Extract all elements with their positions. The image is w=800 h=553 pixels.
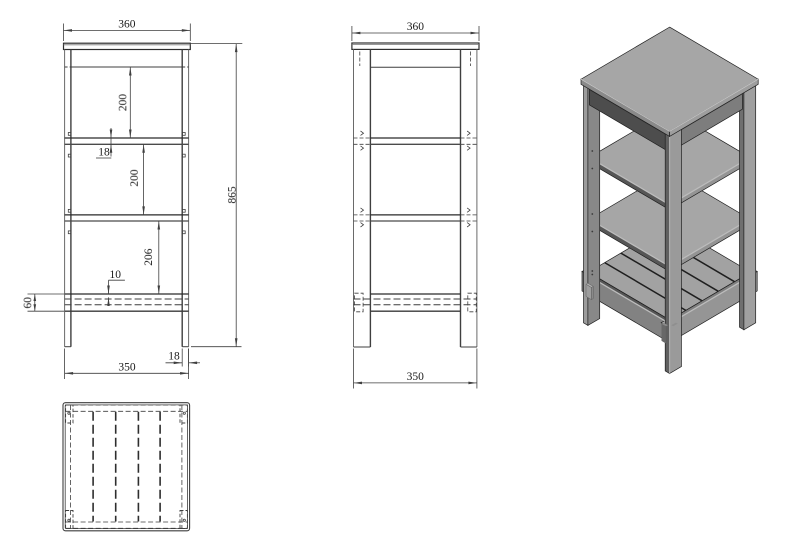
svg-text:350: 350 [118,361,136,373]
svg-text:60: 60 [22,297,34,309]
svg-text:360: 360 [407,21,425,33]
svg-text:200: 200 [117,94,129,112]
svg-text:350: 350 [407,371,425,383]
svg-text:18: 18 [98,147,110,159]
svg-text:10: 10 [109,269,121,281]
svg-text:200: 200 [129,169,141,187]
svg-text:865: 865 [227,186,239,204]
svg-text:18: 18 [168,350,180,362]
svg-text:360: 360 [118,18,136,30]
svg-text:206: 206 [143,248,155,266]
